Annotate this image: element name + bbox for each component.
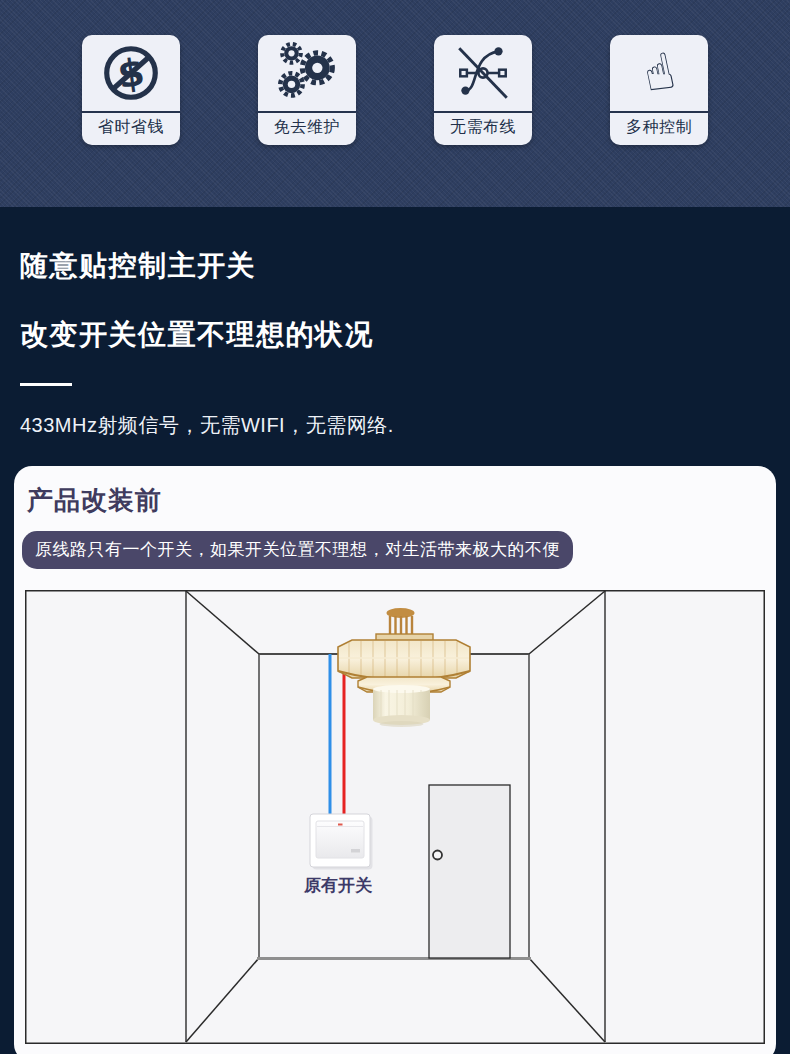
before-modification-card: 产品改装前 原线路只有一个开关，如果开关位置不理想，对生活带来极大的不便: [14, 466, 776, 1054]
room-diagram: 原有开关: [25, 590, 765, 1046]
feature-label: 免去维护: [258, 111, 356, 145]
tap-control-icon: ☝: [610, 35, 708, 111]
no-money-icon: $: [82, 35, 180, 111]
intro-heading-line1: 随意贴控制主开关: [20, 247, 770, 285]
door: [429, 785, 510, 958]
intro-subtitle: 433MHz射频信号，无需WIFI，无需网络.: [20, 412, 770, 439]
intro-heading-line2: 改变开关位置不理想的状况: [20, 316, 770, 354]
product-promo-page: $ 省时省钱: [0, 0, 790, 1054]
feature-badge-no-maintenance: 免去维护: [258, 35, 356, 145]
card-banner: 原线路只有一个开关，如果开关位置不理想，对生活带来极大的不便: [22, 531, 573, 569]
heading-divider: [20, 383, 72, 386]
wall-switch: [310, 814, 373, 870]
door-knob: [433, 851, 442, 860]
feature-label: 省时省钱: [82, 111, 180, 145]
feature-badges-bar: $ 省时省钱: [0, 0, 790, 207]
feature-label: 多种控制: [610, 111, 708, 145]
intro-section: 随意贴控制主开关 改变开关位置不理想的状况 433MHz射频信号，无需WIFI，…: [0, 207, 790, 439]
feature-badge-no-wiring: 无需布线: [434, 35, 532, 145]
card-title: 产品改装前: [27, 483, 776, 518]
original-switch-label: 原有开关: [303, 876, 373, 895]
feature-label: 无需布线: [434, 111, 532, 145]
no-wiring-icon: [434, 35, 532, 111]
feature-badge-multi-control: ☝ 多种控制: [610, 35, 708, 145]
feature-badge-save-money: $ 省时省钱: [82, 35, 180, 145]
gears-icon: [258, 35, 356, 111]
